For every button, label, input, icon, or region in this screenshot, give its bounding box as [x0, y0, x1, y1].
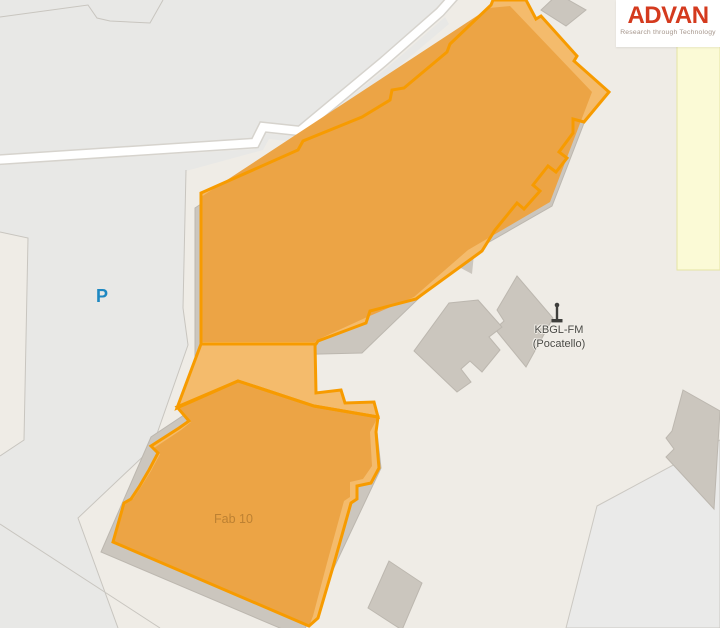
parcel-left-strip [0, 232, 28, 456]
advan-logo-name: ADVAN [616, 3, 720, 29]
landuse-yellow-strip [677, 45, 720, 270]
advan-logo-tagline: Research through Technology [616, 29, 720, 36]
map-viewport[interactable]: P KBGL-FM (Pocatello) Fab 10 ADVAN Resea… [0, 0, 720, 628]
advan-logo: ADVAN Research through Technology [616, 0, 720, 47]
map-canvas[interactable] [0, 0, 720, 628]
